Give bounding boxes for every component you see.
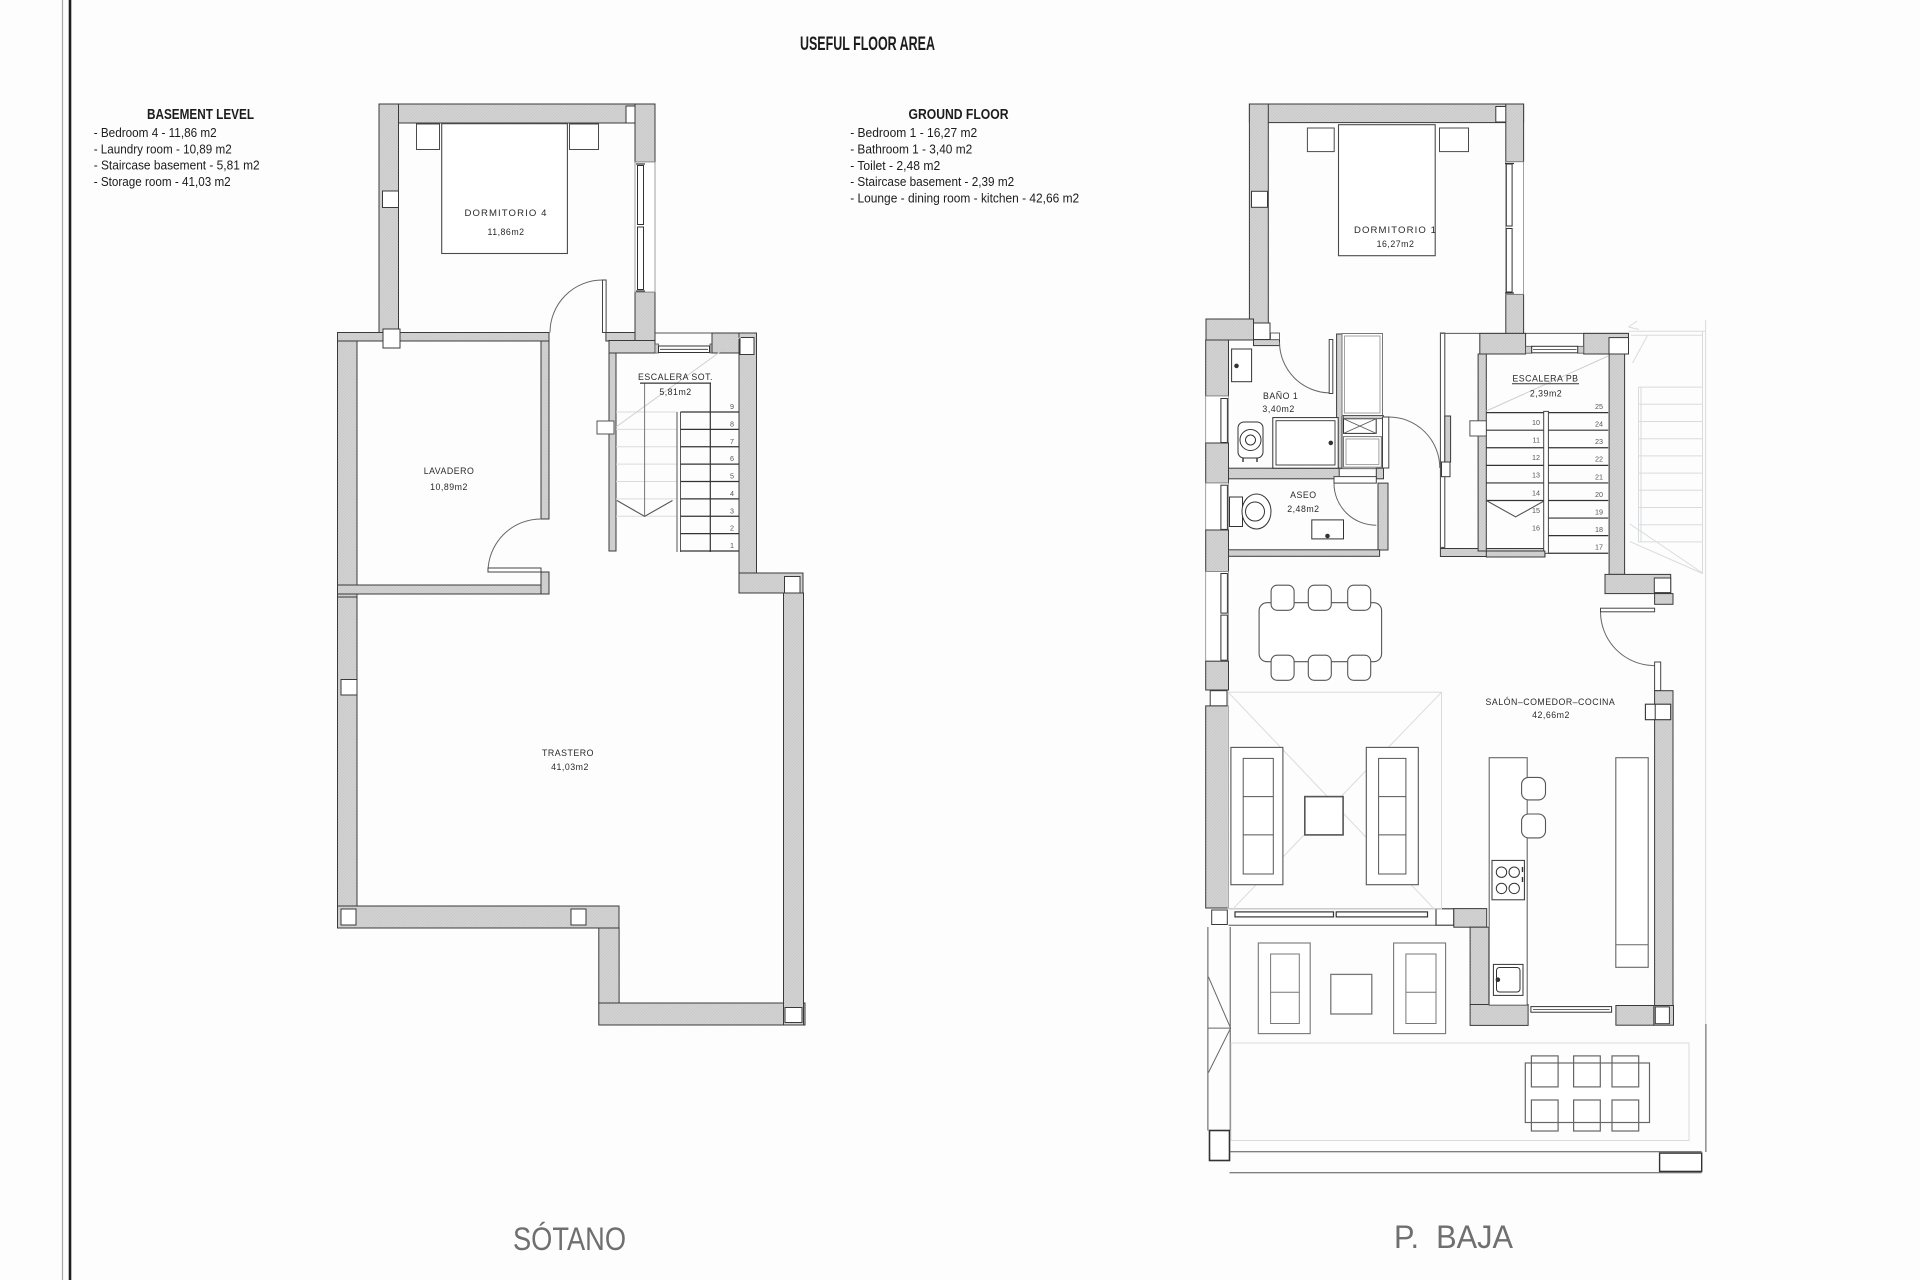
svg-text:ASEO: ASEO — [1290, 490, 1316, 500]
svg-text:10,89m2: 10,89m2 — [430, 482, 468, 492]
svg-text:- Toilet - 2,48 m2: - Toilet - 2,48 m2 — [850, 158, 940, 173]
svg-text:- Storage room - 41,03 m2: - Storage room - 41,03 m2 — [94, 174, 231, 189]
svg-text:4: 4 — [730, 489, 734, 498]
svg-text:- Bedroom 1 - 16,27 m2: - Bedroom 1 - 16,27 m2 — [850, 125, 977, 140]
svg-text:SÓTANO: SÓTANO — [513, 1221, 626, 1257]
svg-text:- Bathroom 1 - 3,40 m2: - Bathroom 1 - 3,40 m2 — [850, 141, 972, 156]
svg-text:DORMITORIO 1: DORMITORIO 1 — [1354, 225, 1437, 235]
svg-text:- Lounge - dining room - kitch: - Lounge - dining room - kitchen - 42,66… — [850, 191, 1079, 206]
svg-text:5: 5 — [730, 472, 734, 481]
svg-text:- Staircase basement - 5,81 m2: - Staircase basement - 5,81 m2 — [94, 158, 260, 173]
svg-text:ESCALERA PB: ESCALERA PB — [1512, 374, 1578, 384]
svg-text:9: 9 — [730, 402, 734, 411]
svg-text:2,48m2: 2,48m2 — [1287, 504, 1319, 514]
svg-text:TRASTERO: TRASTERO — [542, 748, 594, 758]
svg-text:- Bedroom 4 - 11,86 m2: - Bedroom 4 - 11,86 m2 — [94, 125, 217, 140]
svg-text:20: 20 — [1595, 490, 1603, 499]
svg-text:23: 23 — [1595, 437, 1603, 446]
svg-text:USEFUL FLOOR AREA: USEFUL FLOOR AREA — [800, 33, 935, 55]
svg-text:6: 6 — [730, 454, 734, 463]
svg-text:3: 3 — [730, 506, 734, 515]
svg-text:22: 22 — [1595, 455, 1603, 464]
svg-text:LAVADERO: LAVADERO — [424, 466, 475, 476]
svg-text:19: 19 — [1595, 507, 1603, 516]
svg-text:13: 13 — [1532, 471, 1540, 480]
svg-text:15: 15 — [1532, 506, 1540, 515]
svg-text:18: 18 — [1595, 525, 1603, 534]
svg-text:11,86m2: 11,86m2 — [487, 227, 524, 237]
svg-text:2: 2 — [730, 524, 734, 533]
svg-text:7: 7 — [730, 437, 734, 446]
svg-text:42,66m2: 42,66m2 — [1532, 710, 1570, 720]
svg-text:2,39m2: 2,39m2 — [1530, 389, 1562, 399]
svg-text:24: 24 — [1595, 420, 1603, 429]
svg-text:16: 16 — [1532, 523, 1540, 532]
svg-text:14: 14 — [1532, 488, 1540, 497]
svg-text:41,03m2: 41,03m2 — [551, 762, 589, 772]
svg-text:10: 10 — [1532, 418, 1540, 427]
svg-text:12: 12 — [1532, 453, 1540, 462]
svg-text:- Laundry room - 10,89 m2: - Laundry room - 10,89 m2 — [94, 141, 232, 156]
svg-text:P. BAJA: P. BAJA — [1394, 1219, 1514, 1255]
svg-text:1: 1 — [730, 541, 734, 550]
svg-text:SALÓN–COMEDOR–COCINA: SALÓN–COMEDOR–COCINA — [1486, 697, 1616, 707]
svg-text:17: 17 — [1595, 543, 1603, 552]
svg-text:16,27m2: 16,27m2 — [1377, 239, 1415, 249]
svg-text:25: 25 — [1595, 402, 1603, 411]
svg-text:BASEMENT LEVEL: BASEMENT LEVEL — [147, 107, 254, 123]
svg-text:BAÑO 1: BAÑO 1 — [1263, 391, 1298, 401]
svg-text:ESCALERA SOT.: ESCALERA SOT. — [638, 372, 713, 382]
svg-text:21: 21 — [1595, 472, 1603, 481]
svg-text:GROUND FLOOR: GROUND FLOOR — [909, 107, 1009, 123]
svg-text:3,40m2: 3,40m2 — [1262, 404, 1294, 414]
svg-text:5,81m2: 5,81m2 — [659, 387, 691, 397]
svg-text:DORMITORIO 4: DORMITORIO 4 — [465, 208, 548, 218]
svg-text:11: 11 — [1533, 436, 1540, 445]
svg-text:- Staircase basement - 2,39 m2: - Staircase basement - 2,39 m2 — [850, 174, 1014, 189]
svg-text:8: 8 — [730, 419, 734, 428]
